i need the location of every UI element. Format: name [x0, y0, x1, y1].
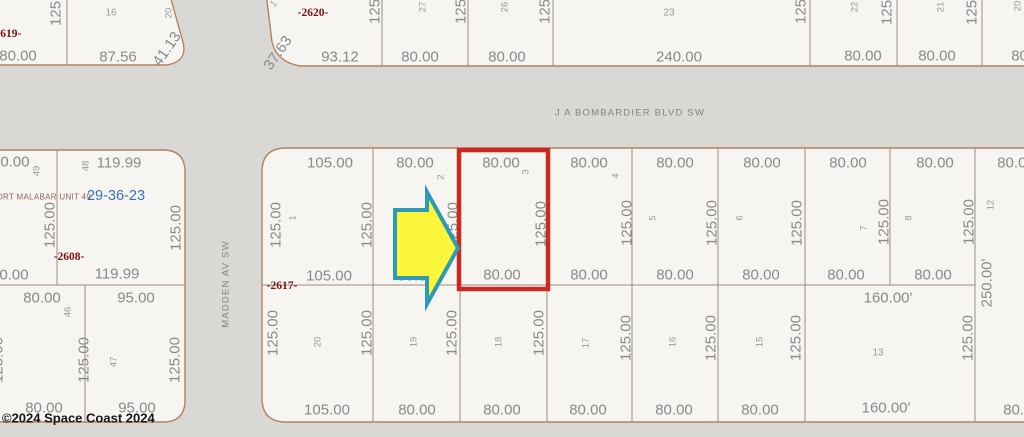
lot-number: 27 — [418, 2, 429, 13]
plat-map-view: 125.001620-2619-80.0087.5641.131-2620-37… — [0, 0, 1024, 437]
dimension-label: 0.00 — [0, 154, 29, 171]
dimension-label: 125.00 — [876, 199, 893, 245]
dimension-label: 80.00 — [655, 402, 693, 419]
lot-number: 49 — [32, 166, 43, 177]
dimension-label: 80.00 — [23, 290, 61, 307]
dimension-label: 125.00 — [531, 310, 548, 356]
lot-number: 2 — [436, 174, 447, 179]
dimension-label: 80.00 — [916, 155, 954, 172]
lot-number: 20 — [313, 337, 324, 348]
lot-number: 17 — [581, 338, 592, 349]
plat-name-label: PORT MALABAR UNIT 49 — [0, 193, 91, 202]
lot-number: 23 — [663, 8, 675, 19]
lot-number: 18 — [494, 337, 505, 348]
lot-number: 15 — [755, 337, 766, 348]
dimension-label: 125.00 — [960, 315, 977, 361]
dimension-label: 125.00 — [537, 0, 554, 24]
lot-number: 20 — [1013, 1, 1024, 12]
dimension-label: 80.00 — [570, 267, 608, 284]
dimension-label: 80.00 — [656, 155, 694, 172]
dimension-label: 119.99 — [95, 266, 140, 283]
dimension-label: 119.99 — [97, 155, 142, 172]
dimension-label: 80.00 — [401, 49, 439, 66]
dimension-label: 125.00 — [453, 0, 470, 24]
dimension-label: 80.00 — [844, 48, 882, 65]
dimension-label: 80.00 — [488, 49, 526, 66]
dimension-label: 80.00 — [918, 48, 956, 65]
lot-number: 21 — [936, 2, 947, 13]
lot-number: 7 — [859, 225, 870, 230]
dimension-label: 250.00' — [979, 258, 996, 307]
dimension-label: 125.00 — [268, 202, 285, 248]
dimension-label: 240.00 — [656, 49, 702, 66]
dimension-label: 0.00 — [0, 267, 29, 284]
dimension-label: 125.00 — [48, 0, 65, 26]
dimension-label: 80.00 — [483, 267, 521, 284]
dimension-label: 125.00 — [619, 200, 636, 246]
lot-number: 16 — [105, 8, 117, 19]
lot-number: 6 — [735, 215, 746, 220]
dimension-label: 80.00 — [570, 155, 608, 172]
dimension-label: 125.00 — [789, 200, 806, 246]
dimension-label: 125.00 — [367, 0, 384, 24]
dimension-label: 105.00 — [304, 402, 350, 419]
lot-number: 46 — [63, 307, 74, 318]
street-name-label: J A BOMBARDIER BLVD SW — [555, 108, 705, 119]
dimension-label: 80.00 — [827, 267, 865, 284]
dimension-label: 80.00 — [742, 267, 780, 284]
lot-number: 22 — [850, 2, 861, 13]
dimension-label: 80.00 — [741, 402, 779, 419]
lot-number: 20 — [164, 8, 175, 19]
dimension-label: 125.00 — [703, 315, 720, 361]
dimension-label: 80.00 — [1003, 402, 1024, 419]
parcel-id-label: -2617- — [267, 280, 298, 292]
dimension-label: 80.00 — [483, 402, 521, 419]
street-name-label: MADDEN AV SW — [221, 240, 232, 328]
lot-number: 48 — [81, 161, 92, 172]
lot-number: 12 — [986, 200, 997, 211]
plat-map-canvas: 125.001620-2619-80.0087.5641.131-2620-37… — [0, 0, 1024, 437]
section-township-range-label: 29-36-23 — [87, 188, 145, 204]
dimension-label: 80.00 — [743, 155, 781, 172]
dimension-label: 80.00 — [398, 402, 436, 419]
dimension-label: 125.00 — [793, 0, 810, 24]
dimension-label: 80.00 — [569, 402, 607, 419]
dimension-label: 125.00 — [704, 200, 721, 246]
dimension-label: 80.00 — [656, 267, 694, 284]
dimension-label: 160.00' — [862, 400, 911, 417]
dimension-label: 125.00 — [788, 315, 805, 361]
dimension-label: 105.00 — [307, 155, 353, 172]
lot-number: 8 — [904, 215, 915, 220]
lot-number: 3 — [521, 169, 532, 174]
lot-number: 13 — [872, 348, 884, 359]
dimension-label: 125.00 — [964, 0, 981, 25]
lot-number: 19 — [409, 337, 420, 348]
dimension-label: 125.00 — [167, 337, 184, 383]
dimension-label: 80.00 — [997, 155, 1024, 172]
dimension-label: 125.00 — [42, 202, 59, 248]
lot-number: 5 — [648, 215, 659, 220]
dimension-label: 125.00 — [0, 337, 7, 383]
dimension-label: 80.00 — [1011, 48, 1024, 65]
dimension-label: 80.00 — [829, 155, 867, 172]
dimension-label: 125.00 — [76, 337, 93, 383]
lot-number: 47 — [109, 357, 120, 368]
parcel-id-label: -2620- — [298, 7, 329, 19]
dimension-label: 160.00' — [864, 290, 913, 307]
lot-number: 26 — [500, 2, 511, 13]
dimension-label: 80.00 — [0, 48, 37, 65]
dimension-label: 125.00 — [359, 310, 376, 356]
dimension-label: 95.00 — [117, 290, 155, 307]
dimension-label: 125.00 — [168, 205, 185, 251]
copyright-watermark: ©2024 Space Coast 2024 — [2, 411, 155, 426]
dimension-label: 125.00 — [618, 315, 635, 361]
dimension-label: 80.00 — [482, 155, 520, 172]
dimension-label: 125.00 — [265, 310, 282, 356]
dimension-label: 125.00 — [961, 199, 978, 245]
dimension-label: 80.00 — [396, 155, 434, 172]
parcel-id-label: -2608- — [54, 251, 85, 263]
parcel-id-label: -2619- — [0, 28, 21, 40]
dimension-label: 125.00 — [444, 310, 461, 356]
lot-number: 4 — [611, 173, 622, 178]
dimension-label: 87.56 — [99, 49, 137, 66]
dimension-label: 93.12 — [321, 49, 359, 66]
lot-number: 1 — [288, 215, 299, 220]
dimension-label: 105.00 — [306, 268, 352, 285]
dimension-label: 125.00 — [879, 0, 896, 25]
dimension-label: 125.00 — [359, 202, 376, 248]
dimension-label: 80.00 — [914, 267, 952, 284]
lot-number: 16 — [668, 337, 679, 348]
